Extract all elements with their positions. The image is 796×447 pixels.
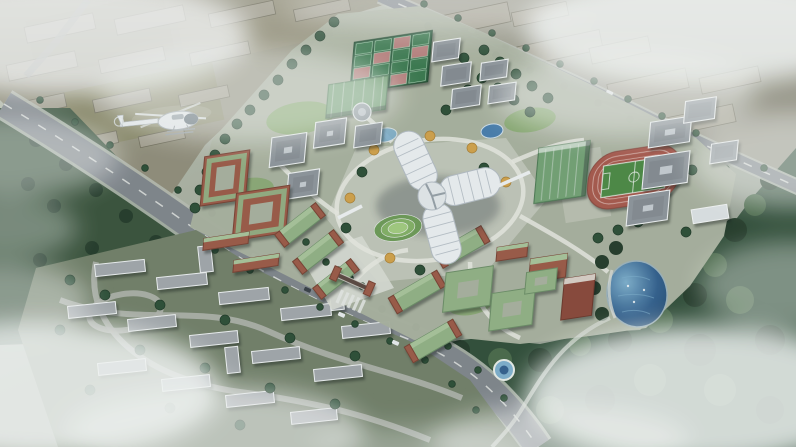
rendering-canvas: Aerial bird's-eye architectural renderin… — [0, 0, 796, 447]
tone-overlay — [0, 0, 796, 447]
aerial-rendering: Aerial bird's-eye architectural renderin… — [0, 0, 796, 447]
